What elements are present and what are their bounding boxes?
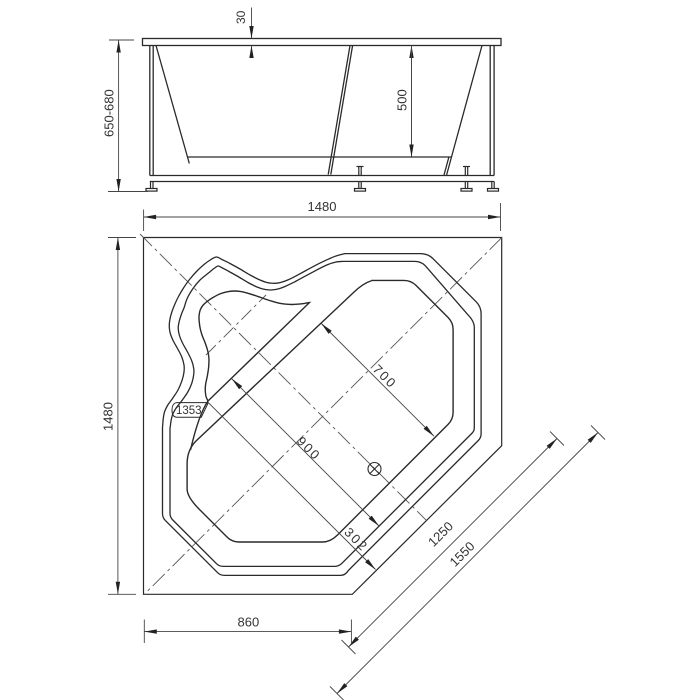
svg-text:1250: 1250 (425, 519, 456, 550)
svg-text:1480: 1480 (101, 402, 116, 431)
svg-text:302: 302 (341, 525, 371, 555)
svg-text:1480: 1480 (308, 199, 337, 214)
svg-text:500: 500 (395, 89, 410, 111)
svg-text:650-680: 650-680 (102, 89, 117, 137)
svg-text:30: 30 (234, 10, 248, 24)
svg-text:1550: 1550 (447, 539, 478, 570)
svg-text:860: 860 (238, 615, 260, 630)
svg-text:900: 900 (294, 434, 324, 464)
svg-text:1353: 1353 (176, 405, 202, 417)
svg-text:700: 700 (370, 362, 400, 392)
